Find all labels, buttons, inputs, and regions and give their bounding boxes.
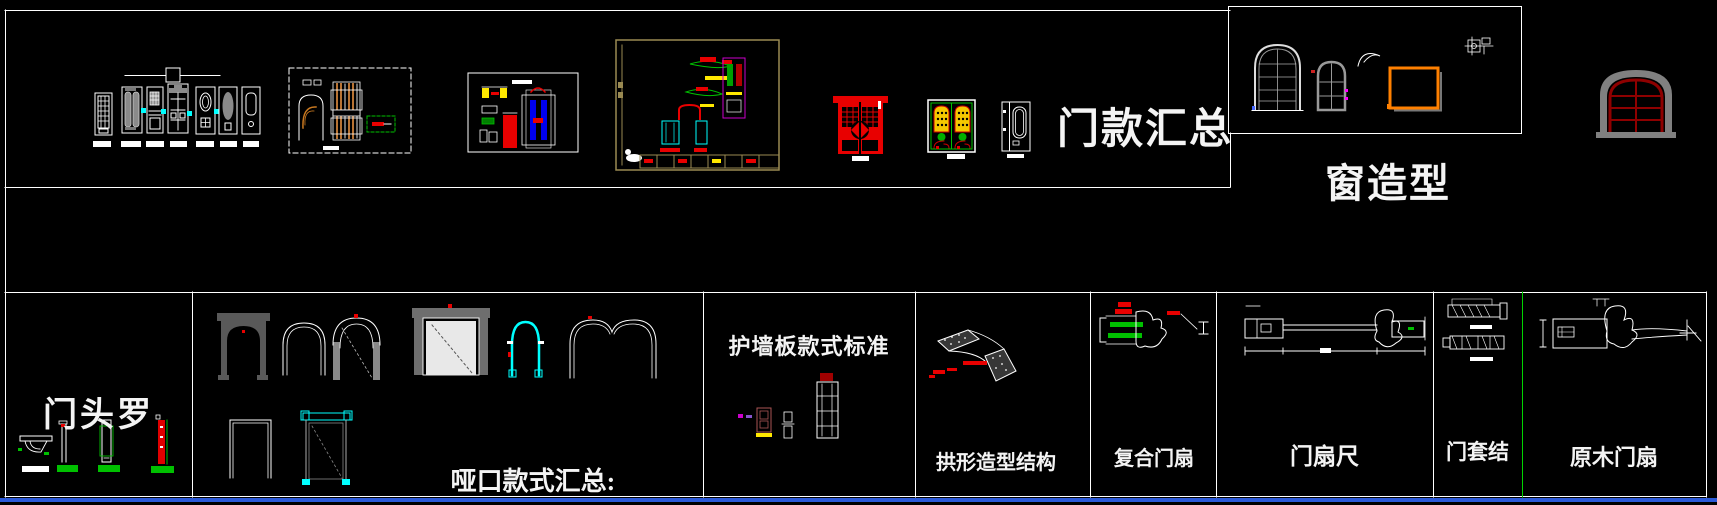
wall-panel-thumb-2[interactable]: [782, 412, 794, 438]
door-thumb-1[interactable]: [95, 93, 112, 135]
wall-panel-standard-label: 护墙板款式标准: [703, 329, 915, 361]
detail-panel[interactable]: [468, 73, 578, 152]
wall-panel-thumb-1[interactable]: [756, 408, 772, 437]
arch-thumb-gray-jambs[interactable]: [333, 314, 380, 380]
solid-wood-door-leaf-label: 原木门扇 标准结构: [1522, 393, 1706, 505]
cad-canvas[interactable]: 门款汇总 窗造型 门头罗 马柱汇总 哑口款式汇总: MST-Y-001-008 …: [0, 0, 1717, 505]
label-line: 拱形造型结构: [916, 452, 1076, 474]
tan-detail-panel[interactable]: [616, 40, 779, 170]
label-line: 哑口款式汇总:: [433, 466, 633, 497]
door-leaf-size-label: 门扇尺 寸标准: [1216, 392, 1433, 505]
dimension-marker-box: [166, 68, 180, 82]
door-head-roman-columns-label: 门头罗 马柱汇总: [5, 316, 192, 505]
window-style-box[interactable]: [1252, 37, 1493, 111]
window-styles-label: 窗造型: [1308, 151, 1468, 209]
door-thumb-6[interactable]: [219, 87, 237, 134]
frame-thumb-cyan[interactable]: [301, 411, 352, 485]
label-line: 门头罗: [5, 396, 192, 436]
door-elevation-row[interactable]: [93, 68, 260, 147]
leaf-size-thumbnail[interactable]: [1245, 306, 1425, 355]
window-thumb-arched-red[interactable]: [1596, 70, 1676, 138]
red-door-label-bar: [852, 156, 869, 161]
frame-profile-2[interactable]: [1443, 336, 1504, 361]
label-line: 门套结: [1433, 440, 1522, 465]
green-door-label-bar: [947, 154, 965, 159]
frame-thumb-plain[interactable]: [230, 420, 271, 478]
arch-structure-label: 拱形造型结构 MST-YJ-01-04: [916, 408, 1076, 505]
wall-panel-thumbnails[interactable]: [738, 373, 838, 438]
arch-structure-thumbnail[interactable]: [929, 330, 1016, 381]
door-thumb-5[interactable]: [196, 87, 219, 134]
door-styles-summary-label: 门款汇总: [1055, 95, 1235, 156]
label-line: 门扇尺: [1216, 444, 1433, 470]
window-thumb-arched-large[interactable]: [1252, 45, 1303, 111]
white-door-label-bar: [1007, 154, 1024, 158]
green-double-door[interactable]: [928, 100, 975, 159]
composite-door-leaf-label: 复合门扇 结构标准: [1092, 397, 1216, 505]
label-line: 复合门扇: [1092, 447, 1216, 472]
label-line: 原木门扇: [1522, 445, 1706, 471]
arch-thumb-pediment-door[interactable]: [412, 304, 490, 375]
frame-profile-1[interactable]: [1448, 299, 1507, 329]
panel-label-bar: [323, 146, 339, 150]
red-double-door[interactable]: [833, 96, 888, 161]
arch-thumb-pediment-gray[interactable]: [217, 313, 270, 380]
wall-panel-thumb-3[interactable]: [817, 373, 838, 438]
door-thumb-2[interactable]: [122, 87, 146, 133]
door-thumb-3[interactable]: [147, 87, 166, 133]
yakou-styles-label: 哑口款式汇总: MST-Y-001-008: [433, 404, 633, 505]
arch-thumb-cyan-horseshoe[interactable]: [507, 322, 544, 377]
dashed-detail-panel[interactable]: [289, 68, 411, 153]
door-thumb-4[interactable]: [168, 84, 192, 133]
arch-thumb-double-hump[interactable]: [570, 316, 656, 378]
window-box-border: [1229, 7, 1522, 134]
window-thumb-square-orange[interactable]: [1387, 68, 1441, 111]
window-thumb-arched-small[interactable]: [1311, 62, 1348, 110]
door-thumb-7[interactable]: [242, 87, 260, 134]
frame-profile-thumbnails[interactable]: [1443, 299, 1507, 361]
door-label-bars: [93, 141, 259, 147]
arch-thumb-round-outline[interactable]: [283, 323, 325, 375]
door-frame-structure-label: 门套结 构标准: [1433, 390, 1522, 505]
white-single-door[interactable]: [1002, 102, 1030, 158]
arc-detail: [1358, 54, 1380, 66]
solid-wood-leaf-thumbnail[interactable]: [1540, 299, 1701, 348]
composite-leaf-thumbnail[interactable]: [1100, 302, 1208, 347]
plan-detail-glyphs: [1465, 37, 1493, 55]
